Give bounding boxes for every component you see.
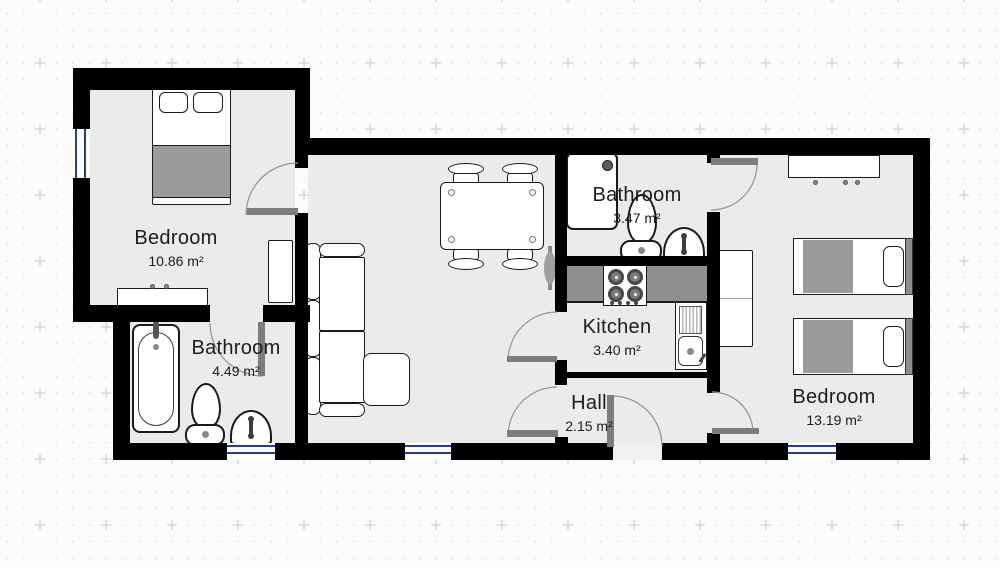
wall [913, 155, 930, 443]
door-leaf-bathroom-top[interactable] [711, 158, 758, 165]
chair [448, 248, 484, 270]
door-gap [555, 312, 567, 360]
wall [562, 372, 710, 378]
table-screw [448, 236, 455, 243]
dresser-knob [164, 284, 169, 289]
window-frame [84, 129, 86, 178]
table-screw [529, 189, 536, 196]
door-gap [707, 393, 720, 433]
basin-tap-knob [248, 416, 254, 422]
dresser-knob [855, 180, 860, 185]
table-screw [529, 236, 536, 243]
basin-tap-knob [681, 233, 687, 239]
door-leaf-hall[interactable] [507, 430, 558, 437]
room-label-hall: Hall 2.15 m² [565, 392, 612, 434]
sink-drainboard [679, 306, 702, 334]
chair-back [502, 258, 538, 270]
window[interactable] [786, 443, 838, 460]
bed-footboard [152, 197, 231, 205]
sofa-seat [319, 331, 365, 403]
window-frame [788, 445, 836, 447]
wall [295, 213, 308, 443]
dresser-knob [813, 180, 818, 185]
single-bed[interactable] [793, 318, 913, 375]
wall [838, 443, 930, 460]
bed-blanket [803, 240, 853, 293]
bathtub[interactable] [132, 324, 180, 433]
wall [555, 256, 707, 266]
wardrobe-divider [718, 298, 752, 299]
sofa-chaise [363, 353, 410, 406]
room-name: Bedroom [134, 227, 217, 250]
room-area: 4.49 m² [191, 363, 280, 379]
room-name: Kitchen [583, 316, 652, 339]
toilet[interactable] [185, 383, 225, 446]
window[interactable] [73, 127, 90, 180]
room-label-bedroom-left: Bedroom 10.86 m² [134, 227, 217, 269]
bed-blanket [152, 145, 231, 198]
stove-burner [627, 286, 643, 302]
stove-burner [608, 269, 624, 285]
wall [130, 305, 210, 322]
bed-pillow [883, 326, 904, 367]
bed-headboard [905, 238, 913, 295]
bed-headboard [905, 318, 913, 375]
wall [707, 433, 720, 443]
stove-control [618, 301, 622, 305]
wall [555, 437, 568, 445]
room-name: Bedroom [792, 386, 875, 409]
shower-head [602, 160, 613, 171]
bathtub-faucet [153, 321, 159, 339]
wall [662, 443, 786, 460]
wall [73, 68, 310, 90]
radiator[interactable] [543, 246, 555, 290]
floor-plan-canvas: Bedroom 10.86 m² Bathroom 4.49 m² Bathro… [0, 0, 1000, 567]
bed-pillow [883, 246, 904, 287]
wall [113, 443, 225, 460]
table-screw [448, 189, 455, 196]
wall [555, 138, 567, 312]
wall [73, 305, 133, 322]
room-area: 10.86 m² [134, 253, 217, 269]
window-frame [227, 452, 275, 454]
room-name: Bathroom [191, 337, 280, 360]
wall [295, 90, 310, 138]
room-label-bathroom-top: Bathroom 3.47 m² [592, 184, 681, 226]
toilet-flush [202, 431, 209, 438]
chair [502, 248, 538, 270]
window[interactable] [403, 443, 453, 460]
basin-tap-knob [248, 433, 254, 439]
corner-sofa[interactable] [303, 241, 411, 419]
room-label-kitchen: Kitchen 3.40 m² [583, 316, 652, 358]
door-gap [707, 163, 720, 212]
window-frame [75, 129, 77, 178]
basin-tap-knob [681, 249, 687, 255]
room-name: Hall [565, 392, 612, 415]
toilet-flush [638, 247, 645, 254]
dining-set[interactable] [438, 161, 548, 271]
stove-burner [608, 286, 624, 302]
window[interactable] [225, 443, 277, 460]
room-label-bathroom-left: Bathroom 4.49 m² [191, 337, 280, 379]
wardrobe[interactable] [717, 250, 753, 347]
toilet-bowl [191, 383, 221, 429]
single-bed[interactable] [793, 238, 913, 295]
kitchen-sink[interactable] [675, 302, 707, 370]
dresser-knob [150, 284, 155, 289]
window-frame [227, 445, 275, 447]
room-name: Bathroom [592, 184, 681, 207]
sofa-seat [319, 257, 365, 331]
room-area: 2.15 m² [565, 418, 612, 434]
room-label-bedroom-right: Bedroom 13.19 m² [792, 386, 875, 428]
window-frame [788, 452, 836, 454]
double-bed[interactable] [152, 83, 231, 205]
sofa-armrest [319, 403, 365, 417]
room-area: 3.40 m² [583, 342, 652, 358]
chair-back [448, 258, 484, 270]
wall [113, 322, 130, 443]
wall [453, 443, 613, 460]
sink-drain [687, 348, 694, 355]
window-frame [405, 452, 451, 454]
wall [73, 180, 90, 322]
door-leaf-bedroom-right[interactable] [712, 428, 759, 434]
stove-control [626, 301, 630, 305]
stove[interactable] [603, 264, 647, 306]
bed-pillow [193, 92, 223, 113]
wash-basin[interactable] [230, 410, 272, 445]
entrance-threshold [613, 443, 662, 460]
wall [707, 212, 720, 393]
stove-control [634, 301, 638, 305]
sofa-armrest [319, 243, 365, 257]
dining-table [440, 182, 544, 250]
dresser-knob [843, 180, 848, 185]
window-frame [405, 445, 451, 447]
stove-burner [627, 269, 643, 285]
room-area: 3.47 m² [592, 210, 681, 226]
bathtub-drain [153, 344, 159, 350]
stove-control [610, 301, 614, 305]
wardrobe[interactable] [268, 240, 293, 303]
bed-blanket [803, 320, 853, 373]
room-area: 13.19 m² [792, 412, 875, 428]
dresser[interactable] [788, 155, 880, 178]
wall [295, 443, 403, 460]
wall [295, 138, 930, 155]
door-leaf-bedroom-left[interactable] [247, 208, 298, 215]
bed-pillow [159, 92, 188, 113]
door-leaf-kitchen[interactable] [507, 356, 557, 362]
wall [73, 90, 90, 127]
